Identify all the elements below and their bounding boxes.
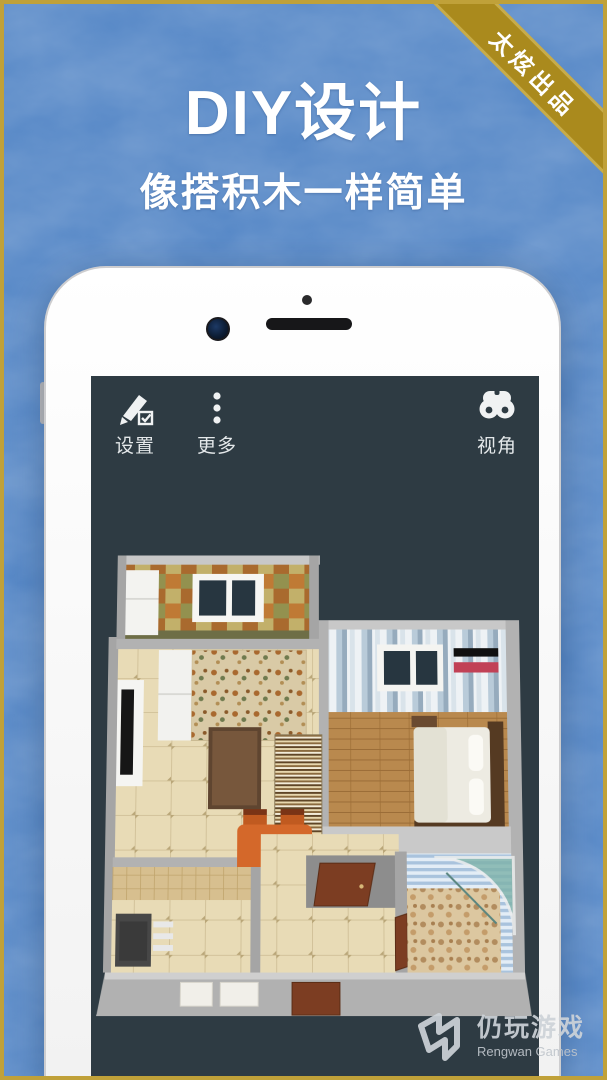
wall-living-utility (113, 857, 253, 868)
phone-speaker (266, 318, 352, 330)
front-window (220, 982, 258, 1006)
pencil-icon (113, 388, 157, 428)
floral-rug (191, 650, 306, 740)
tv (120, 689, 134, 774)
promo-page: DIY设计 像搭积木一样简单 太炫出品 设置 (0, 0, 607, 1080)
view-angle-label: 视角 (477, 431, 517, 458)
rengwan-logo-icon (417, 1012, 469, 1062)
app-screen: 设置 更多 视角 (91, 376, 539, 1080)
page-subtitle: 像搭积木一样简单 (4, 162, 603, 218)
binoculars-icon (473, 384, 521, 428)
more-dots-icon (195, 388, 239, 428)
kitchen-fridge (125, 570, 159, 635)
kitchen-room (116, 555, 320, 648)
utility-tile-wall (112, 867, 253, 900)
more-label: 更多 (197, 431, 237, 458)
bathroom-floor (407, 888, 501, 972)
bathroom-door (314, 863, 375, 906)
tv-stand (116, 680, 144, 786)
coffee-table (208, 727, 261, 809)
floor-plan-view[interactable] (96, 544, 534, 1028)
settings-label: 设置 (115, 431, 155, 458)
hallway (260, 834, 407, 972)
bed (412, 716, 505, 830)
utility-room (111, 867, 261, 973)
phone-sensor-dot (302, 295, 312, 305)
bedroom-window (377, 644, 443, 691)
phone-camera-icon (206, 317, 230, 341)
watermark-name-en: Rengwan Games (477, 1045, 585, 1059)
settings-button[interactable]: 设置 (105, 388, 165, 458)
wall-kitchen-living (116, 639, 319, 649)
view-angle-button[interactable]: 视角 (467, 384, 527, 458)
front-window (180, 982, 212, 1006)
side-door (395, 914, 407, 971)
front-door (292, 982, 340, 1015)
bedroom-room (319, 620, 523, 834)
kitchen-window (192, 574, 264, 622)
watermark: 仍玩游戏 Rengwan Games (417, 1008, 595, 1066)
watermark-name-cn: 仍玩游戏 (477, 1015, 585, 1043)
phone-mockup: 设置 更多 视角 (44, 266, 561, 1080)
more-button[interactable]: 更多 (187, 388, 247, 458)
white-cabinet (158, 650, 192, 740)
